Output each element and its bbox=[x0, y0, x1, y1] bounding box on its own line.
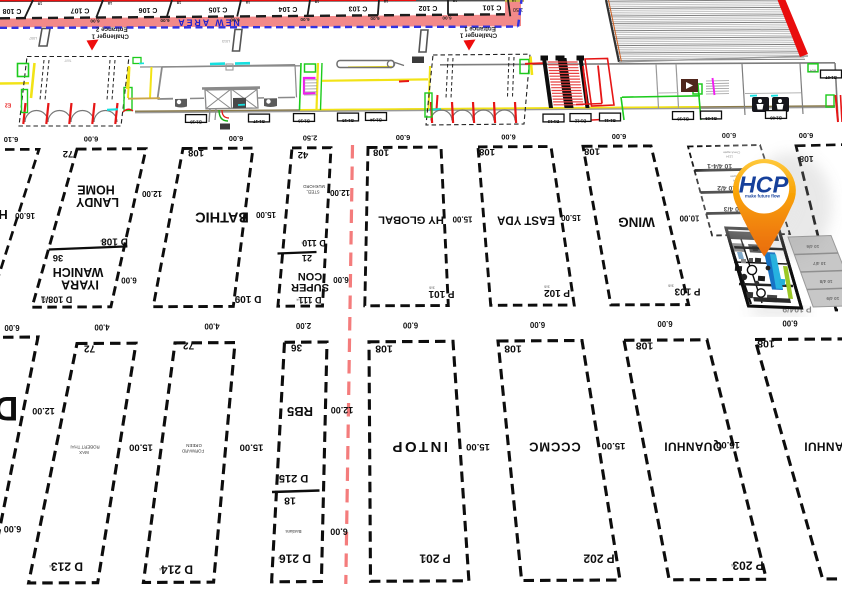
svg-text:3x6: 3x6 bbox=[235, 297, 241, 301]
svg-text:12.00: 12.00 bbox=[141, 189, 162, 198]
svg-text:18: 18 bbox=[107, 1, 112, 6]
svg-text:C 108: C 108 bbox=[3, 7, 22, 14]
svg-text:6.00: 6.00 bbox=[300, 17, 310, 22]
svg-text:6.00: 6.00 bbox=[782, 318, 798, 327]
svg-text:10 4/9: 10 4/9 bbox=[826, 296, 839, 301]
svg-text:B1-15: B1-15 bbox=[342, 118, 354, 123]
svg-text:12.00: 12.00 bbox=[32, 406, 55, 416]
svg-text:INTOP: INTOP bbox=[390, 438, 448, 455]
svg-text:6.00: 6.00 bbox=[370, 16, 380, 21]
svg-text:72: 72 bbox=[63, 148, 74, 159]
svg-text:MUKHORO: MUKHORO bbox=[302, 184, 325, 189]
svg-text:GREEN: GREEN bbox=[186, 443, 202, 448]
svg-text:3x6: 3x6 bbox=[544, 285, 550, 289]
svg-text:3x4: 3x4 bbox=[278, 556, 284, 560]
svg-text:6.00: 6.00 bbox=[396, 133, 410, 142]
svg-text:18: 18 bbox=[176, 1, 181, 6]
svg-text:3x6: 3x6 bbox=[731, 563, 737, 567]
svg-text:HOME: HOME bbox=[77, 183, 115, 197]
svg-text:3x6: 3x6 bbox=[429, 286, 435, 290]
svg-text:3x4: 3x4 bbox=[301, 241, 306, 245]
svg-text:B1-11: B1-11 bbox=[604, 118, 616, 123]
svg-text:108: 108 bbox=[636, 340, 654, 352]
svg-text:QUANHUI: QUANHUI bbox=[664, 440, 722, 454]
svg-text:18: 18 bbox=[383, 0, 388, 4]
svg-text:B1-17: B1-17 bbox=[253, 119, 265, 124]
svg-text:6.00: 6.00 bbox=[229, 134, 243, 143]
svg-text:QUANHUI: QUANHUI bbox=[804, 440, 842, 454]
svg-text:IYARA: IYARA bbox=[61, 278, 99, 292]
svg-text:6.00: 6.00 bbox=[612, 132, 626, 141]
svg-text:18: 18 bbox=[314, 0, 319, 5]
svg-text:10.00: 10.00 bbox=[679, 213, 700, 222]
svg-text:6.00: 6.00 bbox=[4, 524, 22, 534]
svg-text:STEEL: STEEL bbox=[306, 190, 320, 195]
svg-text:B1-09: B1-09 bbox=[705, 116, 717, 121]
svg-text:BATHIC: BATHIC bbox=[195, 209, 249, 225]
svg-text:15.00: 15.00 bbox=[466, 441, 490, 452]
svg-text:6.10: 6.10 bbox=[4, 135, 18, 144]
svg-text:18: 18 bbox=[37, 2, 42, 7]
svg-text:7m/7: 7m/7 bbox=[64, 59, 71, 63]
svg-text:108: 108 bbox=[757, 338, 775, 350]
svg-text:P 103: P 103 bbox=[674, 286, 700, 297]
svg-text:MAX: MAX bbox=[79, 450, 89, 455]
svg-text:3x4: 3x4 bbox=[279, 476, 285, 480]
svg-text:R04: R04 bbox=[810, 69, 817, 73]
svg-text:6.00: 6.00 bbox=[230, 17, 240, 22]
svg-text:15.00: 15.00 bbox=[240, 442, 264, 453]
svg-text:L013: L013 bbox=[222, 39, 230, 43]
svg-text:SUPER: SUPER bbox=[291, 281, 329, 293]
svg-text:FORWARD: FORWARD bbox=[182, 449, 204, 454]
svg-text:18: 18 bbox=[452, 0, 457, 3]
svg-text:6.00: 6.00 bbox=[529, 320, 545, 329]
svg-text:72: 72 bbox=[84, 343, 96, 354]
svg-text:108: 108 bbox=[504, 343, 522, 355]
svg-text:CCCMC: CCCMC bbox=[528, 440, 580, 455]
svg-text:15.00: 15.00 bbox=[560, 213, 581, 222]
svg-text:6.00: 6.00 bbox=[121, 276, 137, 285]
svg-text:6.00: 6.00 bbox=[442, 16, 452, 21]
svg-text:12.00: 12.00 bbox=[331, 405, 354, 415]
svg-text:6.00: 6.00 bbox=[160, 18, 170, 23]
svg-text:B1-14: B1-14 bbox=[370, 117, 382, 122]
svg-text:WING: WING bbox=[618, 215, 655, 230]
svg-text:6.00: 6.00 bbox=[90, 18, 100, 23]
svg-text:C 106: C 106 bbox=[139, 6, 158, 13]
svg-text:C 105: C 105 bbox=[209, 6, 228, 13]
svg-text:3x6: 3x6 bbox=[159, 567, 165, 571]
svg-text:12.00: 12.00 bbox=[329, 188, 350, 197]
svg-text:15.00: 15.00 bbox=[452, 215, 473, 224]
svg-text:CON: CON bbox=[298, 270, 323, 282]
svg-text:B1-07: B1-07 bbox=[825, 75, 837, 80]
svg-text:Entrance 1: Entrance 1 bbox=[464, 25, 496, 32]
svg-text:21: 21 bbox=[302, 253, 312, 263]
svg-text:H: H bbox=[0, 207, 8, 222]
svg-text:16.00: 16.00 bbox=[14, 211, 35, 220]
svg-text:108: 108 bbox=[188, 147, 204, 158]
svg-text:3x6: 3x6 bbox=[41, 297, 47, 301]
svg-text:10 4/7: 10 4/7 bbox=[813, 261, 826, 266]
svg-text:C 102: C 102 bbox=[419, 4, 438, 11]
svg-text:B1-13: B1-13 bbox=[547, 119, 559, 124]
svg-text:B1-12: B1-12 bbox=[574, 118, 586, 123]
svg-text:EAST YDA: EAST YDA bbox=[497, 214, 555, 226]
svg-text:B1-16: B1-16 bbox=[298, 118, 310, 123]
svg-text:3x6: 3x6 bbox=[100, 239, 106, 243]
svg-text:Entrance 2: Entrance 2 bbox=[95, 26, 127, 33]
svg-text:LANDY: LANDY bbox=[75, 195, 119, 209]
svg-text:L007: L007 bbox=[29, 36, 37, 40]
svg-text:72: 72 bbox=[183, 340, 195, 351]
svg-text:18: 18 bbox=[245, 0, 250, 5]
svg-text:C 104: C 104 bbox=[279, 5, 298, 12]
svg-text:42: 42 bbox=[298, 149, 309, 160]
svg-text:6.00: 6.00 bbox=[333, 275, 349, 284]
svg-text:RB5: RB5 bbox=[287, 404, 313, 419]
svg-text:4.00: 4.00 bbox=[204, 322, 220, 331]
svg-text:36: 36 bbox=[53, 252, 64, 263]
svg-text:C 103: C 103 bbox=[349, 4, 368, 11]
svg-text:36: 36 bbox=[291, 342, 303, 353]
svg-text:15.00: 15.00 bbox=[255, 210, 276, 219]
svg-text:6.00: 6.00 bbox=[330, 527, 348, 537]
svg-text:6.00: 6.00 bbox=[402, 321, 418, 330]
svg-text:3x6: 3x6 bbox=[584, 556, 590, 560]
svg-text:HY GLOBAL: HY GLOBAL bbox=[378, 214, 444, 226]
svg-text:2.50: 2.50 bbox=[303, 134, 317, 143]
svg-text:4.00: 4.00 bbox=[94, 322, 110, 331]
svg-text:C 101: C 101 bbox=[483, 3, 502, 10]
svg-text:15.00: 15.00 bbox=[716, 439, 740, 450]
svg-text:6.00: 6.00 bbox=[799, 131, 813, 140]
svg-text:ROBERT THAI: ROBERT THAI bbox=[70, 445, 99, 450]
svg-text:108: 108 bbox=[373, 147, 389, 158]
svg-text:18: 18 bbox=[511, 0, 516, 3]
svg-text:C 107: C 107 bbox=[71, 7, 90, 14]
svg-text:WANICH: WANICH bbox=[53, 265, 104, 279]
svg-text:3x6: 3x6 bbox=[668, 284, 674, 288]
svg-text:6.00: 6.00 bbox=[657, 319, 673, 328]
svg-text:Bastians: Bastians bbox=[285, 529, 301, 534]
svg-text:B1-08: B1-08 bbox=[770, 115, 782, 120]
svg-text:15.00: 15.00 bbox=[602, 440, 626, 451]
svg-text:3x4: 3x4 bbox=[296, 298, 301, 302]
svg-text:6.00: 6.00 bbox=[4, 323, 20, 332]
svg-text:D: D bbox=[0, 389, 18, 427]
svg-text:15.00: 15.00 bbox=[129, 442, 153, 453]
svg-text:18: 18 bbox=[284, 495, 296, 507]
svg-text:10 4/8: 10 4/8 bbox=[819, 279, 832, 284]
svg-text:make future flow: make future flow bbox=[745, 194, 780, 199]
svg-text:B1-18: B1-18 bbox=[190, 119, 202, 124]
svg-text:108: 108 bbox=[375, 343, 393, 355]
svg-text:E2: E2 bbox=[5, 102, 11, 108]
svg-text:6.00: 6.00 bbox=[84, 135, 98, 144]
svg-text:B1-10: B1-10 bbox=[677, 116, 689, 121]
svg-text:108: 108 bbox=[584, 146, 600, 157]
svg-text:108: 108 bbox=[479, 146, 495, 157]
svg-text:3x6: 3x6 bbox=[421, 556, 427, 560]
svg-text:6.00: 6.00 bbox=[501, 132, 515, 141]
svg-text:3x6: 3x6 bbox=[49, 564, 55, 568]
svg-text:2.00: 2.00 bbox=[295, 321, 311, 330]
